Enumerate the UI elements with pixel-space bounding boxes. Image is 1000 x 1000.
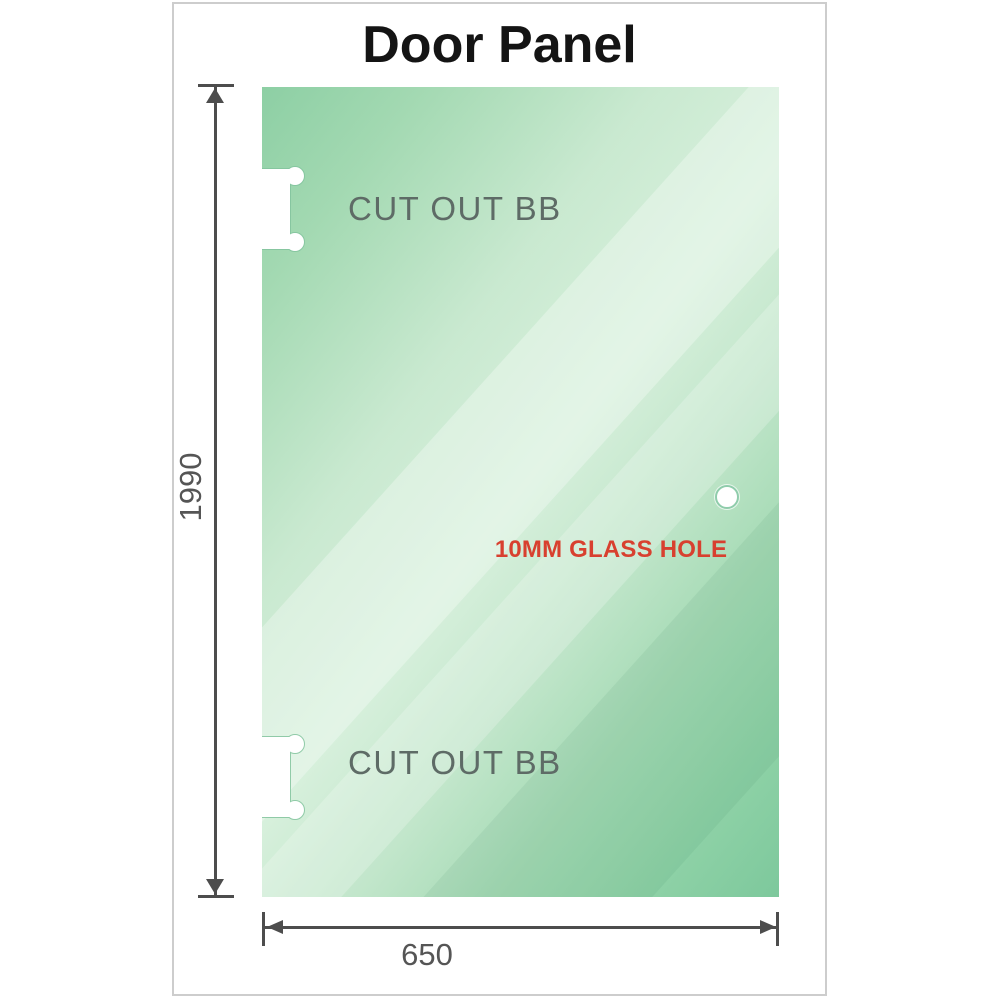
height-dim-line: [214, 87, 217, 895]
width-dim-value: 650: [377, 938, 477, 972]
width-dim-left-tick: [262, 912, 265, 946]
height-dim-arrowhead-down: [206, 879, 224, 894]
hinge-cutout-top-icon: [262, 166, 306, 254]
width-dim-arrowhead-left: [267, 920, 283, 934]
width-dim-line: [265, 926, 776, 929]
width-dim-arrowhead-right: [760, 920, 776, 934]
height-dim-bottom-tick: [198, 895, 234, 898]
glass-hole: [715, 485, 739, 509]
height-dim-arrowhead-up: [206, 88, 224, 103]
cutout-top-label: CUT OUT BB: [348, 190, 628, 228]
hinge-cutout-bottom-icon: [262, 734, 306, 822]
height-dim-value: 1990: [175, 427, 207, 547]
width-dim-right-tick: [776, 912, 779, 946]
cutout-bottom-label: CUT OUT BB: [348, 744, 628, 782]
glass-panel: CUT OUT BB CUT OUT BB 10MM GLASS HOLE: [262, 87, 779, 897]
door-panel-diagram: Door Panel: [0, 0, 1000, 1000]
glass-hole-label: 10MM GLASS HOLE: [486, 536, 736, 564]
diagram-title: Door Panel: [172, 14, 827, 76]
